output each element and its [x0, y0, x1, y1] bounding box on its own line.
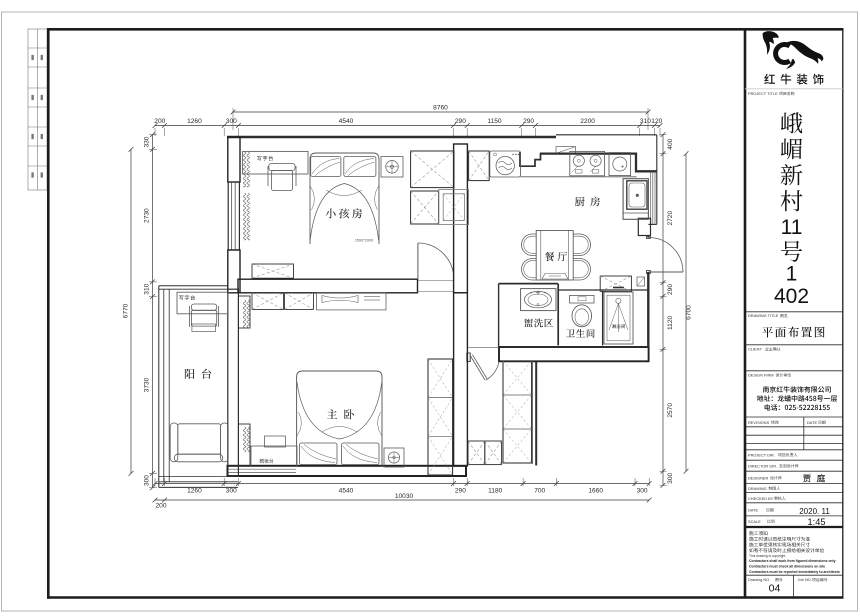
- svg-text:400: 400: [667, 138, 674, 149]
- svg-text:290: 290: [455, 487, 466, 494]
- svg-text:300: 300: [226, 487, 237, 494]
- svg-text:DATE: DATE: [807, 420, 817, 425]
- svg-text:CLIENT: CLIENT: [748, 347, 762, 352]
- svg-text:Job NO.: Job NO.: [798, 577, 812, 582]
- svg-text:290: 290: [667, 284, 674, 295]
- svg-text:6700: 6700: [686, 305, 693, 320]
- svg-text:1660: 1660: [588, 487, 603, 494]
- svg-text:2200: 2200: [580, 118, 595, 125]
- svg-text:2730: 2730: [144, 208, 151, 223]
- svg-text:300: 300: [667, 472, 674, 483]
- svg-text:200: 200: [154, 118, 165, 125]
- svg-text:700: 700: [534, 487, 545, 494]
- svg-text:PROJECT TITLE: PROJECT TITLE: [748, 91, 778, 96]
- svg-text:2570: 2570: [667, 403, 674, 418]
- svg-text:1120: 1120: [667, 315, 674, 330]
- svg-text:310: 310: [640, 118, 651, 125]
- svg-text:DESIGNER: DESIGNER: [748, 475, 769, 480]
- svg-text:DRAWING TITLE: DRAWING TITLE: [748, 313, 779, 318]
- svg-text:310: 310: [144, 283, 151, 294]
- svg-text:1260: 1260: [187, 487, 202, 494]
- svg-text:402: 402: [774, 285, 809, 308]
- svg-text:SCALE: SCALE: [748, 519, 761, 524]
- svg-text:4540: 4540: [339, 487, 354, 494]
- svg-text:290: 290: [455, 118, 466, 125]
- svg-text:1:45: 1:45: [808, 517, 826, 527]
- svg-text:DIRECTOR DIR.: DIRECTOR DIR.: [748, 463, 777, 468]
- svg-text:300: 300: [226, 118, 237, 125]
- svg-text:8760: 8760: [433, 105, 448, 112]
- svg-text:Contractors must check all dim: Contractors must check all dimensions on…: [749, 565, 825, 569]
- svg-text:Contractors must be reported i: Contractors must be reported immediately…: [749, 570, 840, 574]
- svg-text:DATE: DATE: [748, 508, 758, 513]
- svg-text:04: 04: [769, 583, 781, 595]
- svg-text:120: 120: [651, 118, 662, 125]
- svg-text:11: 11: [781, 216, 803, 239]
- svg-text:Contractors shall work from fi: Contractors shall work from figured dime…: [749, 559, 836, 563]
- svg-text:290: 290: [523, 118, 534, 125]
- svg-text:6770: 6770: [123, 303, 130, 318]
- svg-text:1: 1: [786, 263, 798, 286]
- svg-text:PROJECT DIR.: PROJECT DIR.: [748, 452, 775, 457]
- svg-text:200: 200: [155, 503, 166, 510]
- svg-text:REVISIONS: REVISIONS: [748, 420, 770, 425]
- svg-text:10030: 10030: [395, 493, 414, 500]
- svg-text:Drawing NO.: Drawing NO.: [748, 577, 770, 582]
- svg-text:1500*2000: 1500*2000: [355, 239, 373, 243]
- svg-text:300: 300: [144, 475, 151, 486]
- svg-text:4540: 4540: [339, 118, 354, 125]
- svg-text:1150: 1150: [487, 118, 502, 125]
- svg-text:330: 330: [144, 136, 151, 147]
- svg-text:This drawing is copyright: This drawing is copyright: [749, 554, 785, 558]
- svg-text:DRAWING: DRAWING: [748, 486, 767, 491]
- svg-text:2020. 11: 2020. 11: [799, 507, 830, 516]
- svg-text:DESIGN FIRM: DESIGN FIRM: [748, 373, 774, 378]
- svg-text:CHECKED BY: CHECKED BY: [748, 496, 774, 501]
- svg-text:1260: 1260: [187, 118, 202, 125]
- svg-text:300: 300: [637, 487, 648, 494]
- svg-text:1180: 1180: [488, 487, 503, 494]
- svg-text:3730: 3730: [144, 377, 151, 392]
- svg-text:2720: 2720: [667, 211, 674, 226]
